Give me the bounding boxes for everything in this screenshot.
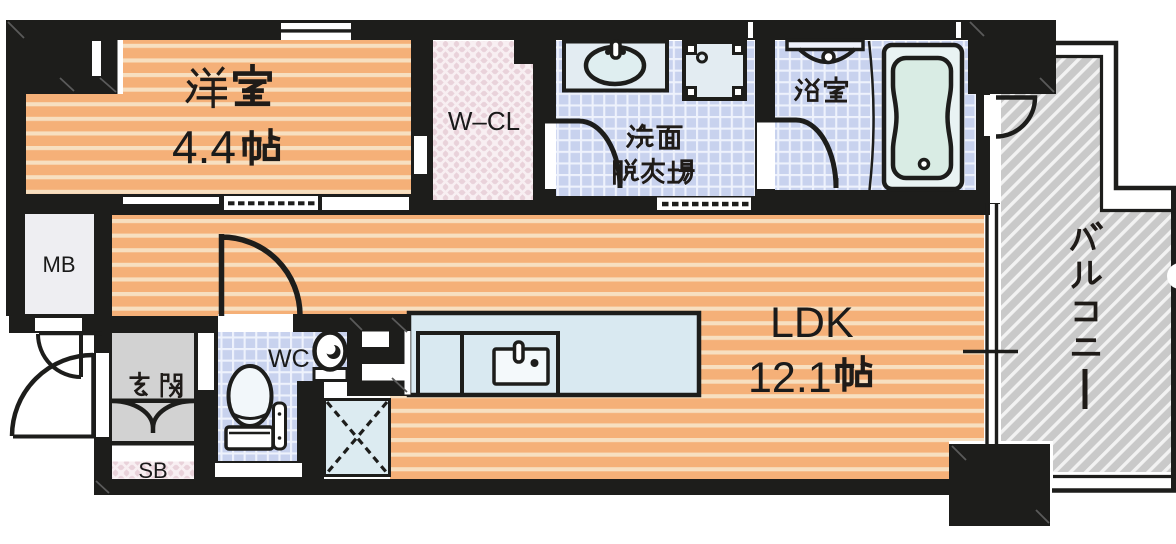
svg-text:4.4: 4.4 [172,121,236,173]
svg-text:W–CL: W–CL [448,106,520,136]
svg-text:WC: WC [268,345,310,373]
svg-text:12.1: 12.1 [748,354,832,402]
svg-text:LDK: LDK [770,299,854,347]
svg-text:SB: SB [138,458,167,483]
svg-text:MB: MB [43,252,76,277]
